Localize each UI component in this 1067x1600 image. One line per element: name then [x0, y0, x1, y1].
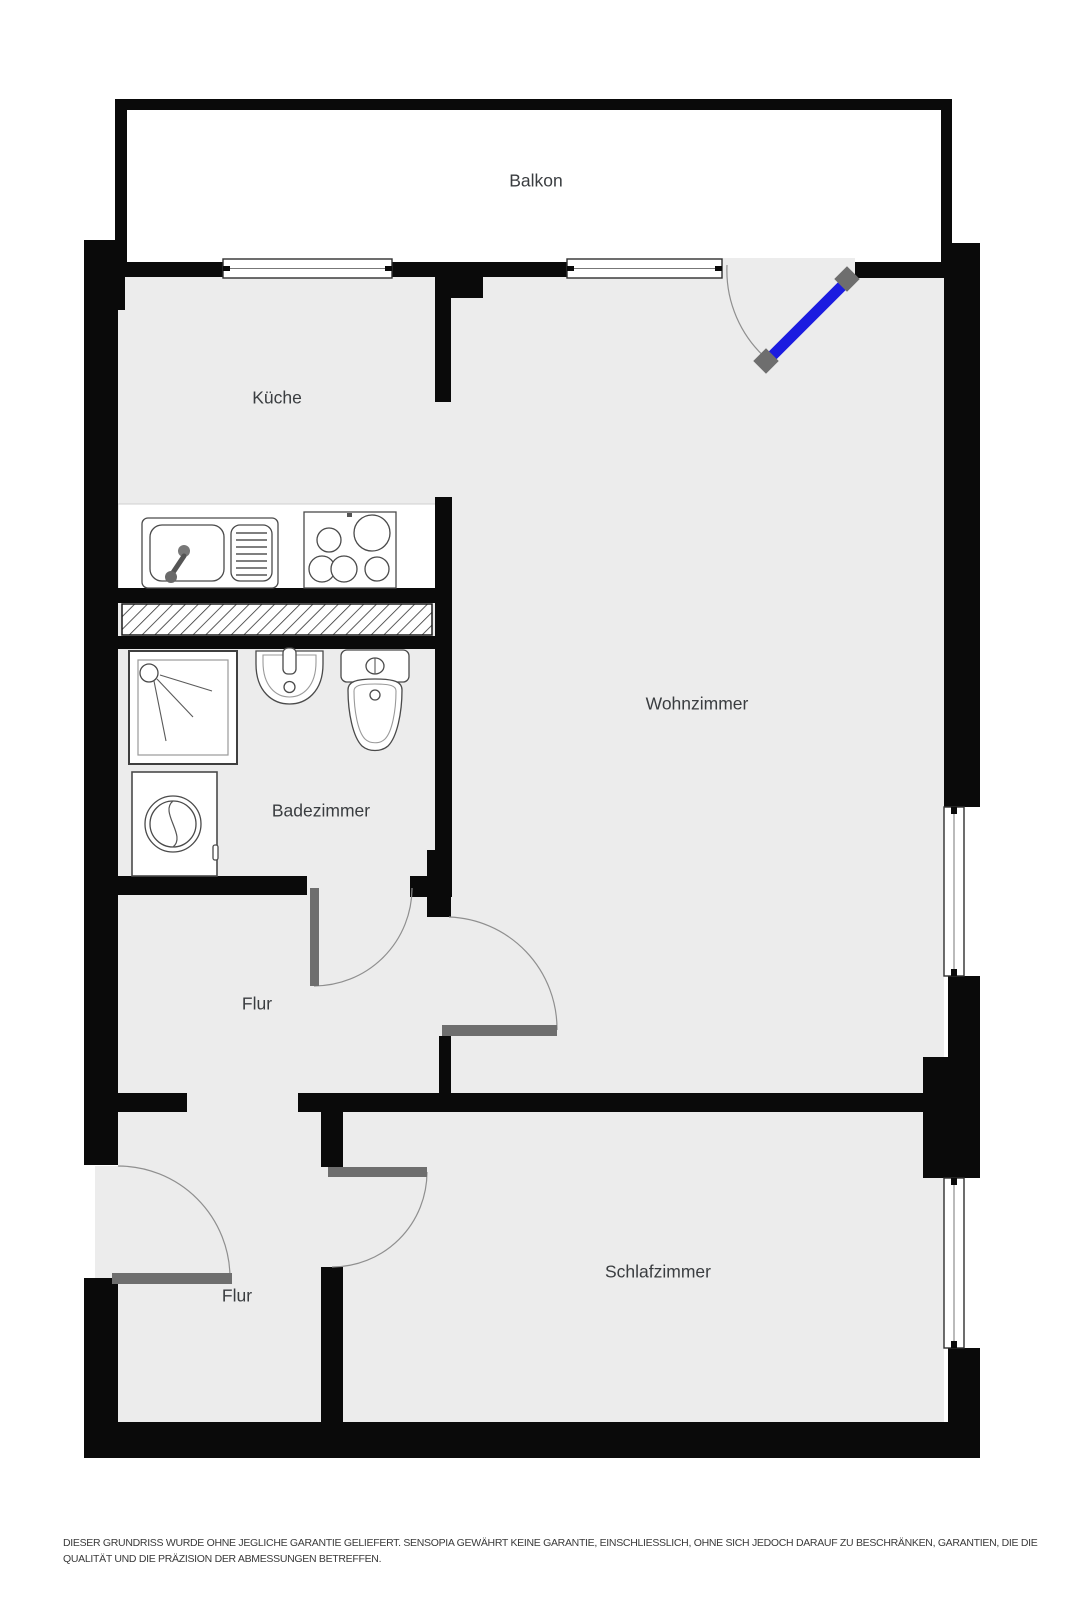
floor-entry-recess — [95, 1166, 118, 1278]
wall-segment — [948, 1348, 980, 1428]
wall-segment — [435, 262, 451, 402]
bathroom-door-leaf — [310, 888, 319, 986]
kitchen-sink — [142, 518, 278, 588]
room-label-kueche: Küche — [252, 388, 302, 409]
room-label-flur-unten: Flur — [222, 1286, 252, 1307]
window-wohnzimmer-top — [567, 259, 722, 278]
wall-segment — [392, 262, 567, 277]
room-label-balkon: Balkon — [509, 171, 563, 192]
wall-segment — [115, 99, 127, 262]
wall-segment — [941, 99, 952, 247]
window-kueche — [223, 259, 392, 278]
shaft-hatch — [122, 604, 432, 635]
wall-segment — [321, 1112, 343, 1167]
wall-segment — [948, 976, 980, 1057]
wall-segment — [118, 588, 436, 603]
floor-plan-drawing — [0, 0, 1067, 1600]
washing-machine — [132, 772, 218, 876]
room-label-badezimmer: Badezimmer — [272, 801, 370, 822]
room-label-schlafzimmer: Schlafzimmer — [605, 1262, 711, 1283]
wall-segment — [451, 277, 483, 298]
wall-segment — [84, 1093, 187, 1112]
room-label-flur-oben: Flur — [242, 994, 272, 1015]
schlafzimmer-door-leaf — [328, 1167, 427, 1177]
window-schlafzimmer-right — [944, 1178, 964, 1348]
shower — [129, 651, 237, 764]
wall-segment — [321, 1267, 343, 1422]
wall-segment — [298, 1093, 945, 1112]
wall-segment — [84, 262, 118, 1165]
floor-plan: Balkon Küche Wohnzimmer Badezimmer Flur … — [0, 0, 1067, 1600]
room-label-wohnzimmer: Wohnzimmer — [646, 694, 749, 715]
disclaimer-line2: QUALITÄT UND DIE PRÄZISION DER ABMESSUNG… — [63, 1551, 1037, 1567]
disclaimer: DIESER GRUNDRISS WURDE OHNE JEGLICHE GAR… — [63, 1535, 1037, 1567]
floor-areas — [95, 258, 944, 1422]
wall-segment — [84, 1422, 980, 1458]
disclaimer-line1: DIESER GRUNDRISS WURDE OHNE JEGLICHE GAR… — [63, 1535, 1037, 1551]
window-wohnzimmer-right — [944, 807, 964, 976]
wall-segment — [118, 262, 223, 277]
floor-main — [118, 277, 944, 1422]
wohnzimmer-door-leaf — [442, 1025, 557, 1036]
wall-segment — [944, 262, 980, 807]
wall-segment — [923, 1057, 980, 1178]
wall-segment — [941, 243, 980, 263]
floor-balcony-door-gap — [722, 258, 855, 278]
entry-door-leaf — [112, 1273, 232, 1284]
wall-segment — [435, 497, 452, 897]
wall-segment — [115, 99, 952, 110]
wall-segment — [410, 876, 438, 897]
wall-segment — [439, 1036, 451, 1093]
wall-segment — [84, 876, 307, 895]
cooktop — [304, 512, 396, 588]
wall-segment — [118, 636, 436, 649]
